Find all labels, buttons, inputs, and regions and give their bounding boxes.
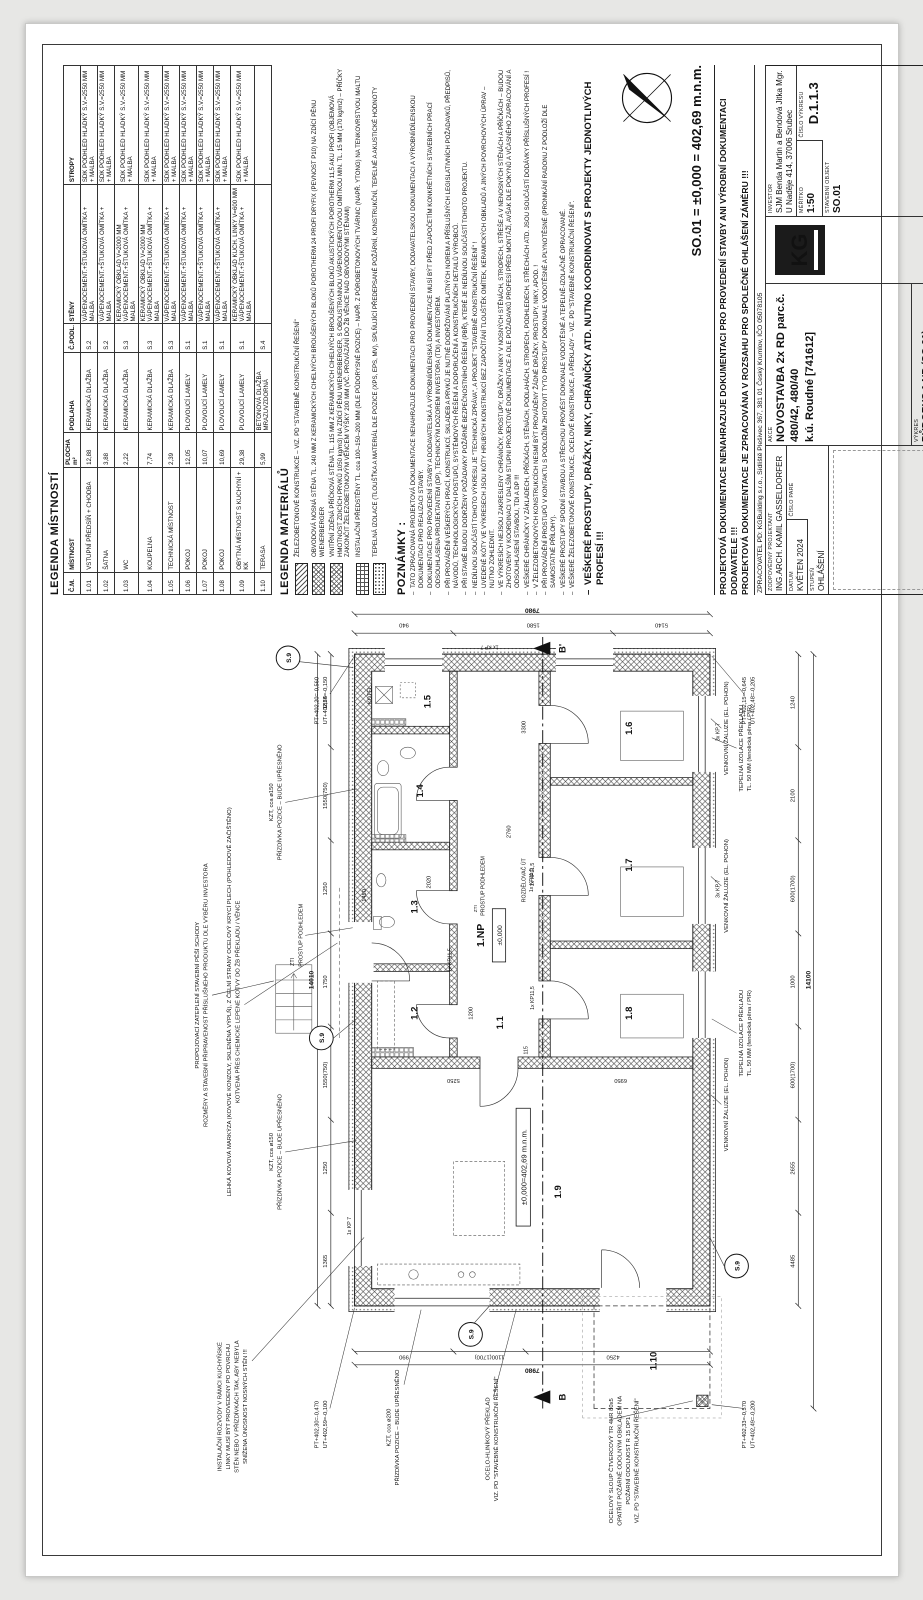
table-row: 1.03WC2,22KERAMICKÁ DLAŽBAS.3KERAMICKÝ O…	[114, 66, 138, 595]
plan-label: S.9	[734, 1261, 741, 1271]
material-description: TEPELNÁ IZOLACE (TLOUŠŤKA A MATERIÁL DLE…	[372, 87, 380, 557]
notes-list: TATO ZPRACOVANÁ PROJEKTOVÁ DOKUMENTACE N…	[410, 65, 577, 595]
dimension-chain	[810, 651, 816, 1411]
project-location: k.ú. Roudné [741612]	[803, 287, 817, 442]
plan-label: 600(1700)	[790, 1062, 796, 1089]
plan-label: PT+402,30=-0,470	[314, 1401, 320, 1448]
table-cell: S.1	[196, 324, 213, 352]
plan-label: INSTALAČNÍ ROZVODY V RÁMCI KUCHYŇSKÉ	[216, 1342, 223, 1471]
plan-label: 1240	[790, 695, 796, 709]
plan-label: VIZ. PD "STAVEBNĚ KONSTRUKČNÍ ŘEŠENÍ"	[632, 1398, 640, 1523]
table-row: 1.08POKOJ10,69PLOVOUCÍ LAMELYS.1VÁPENOCE…	[213, 66, 230, 595]
table-cell: KERAMICKÝ OBKLAD V=2000 MM VÁPENOCEMENT.…	[114, 185, 138, 324]
plan-label: 7980	[524, 607, 539, 614]
plan-label: 1.3	[409, 900, 420, 913]
investor-cell: INVESTOR SJM Benda Martin a Bendová Jitk…	[766, 66, 797, 216]
author-line: ZPRACOVATEL PD: KGBuilding s.r.o., Sídli…	[754, 65, 766, 595]
plan-label: 1550(750)	[323, 1062, 329, 1089]
plan-label: PROSTUP PODHLEDEM	[480, 856, 486, 916]
hatch-swatch-icon	[330, 563, 343, 595]
plan-label: 6950	[614, 1077, 627, 1083]
drawing-frame: 1.11.21.31.41.51.61.71.81.91.101.NP±0,00…	[42, 44, 882, 1556]
table-cell: SDK PODHLED HLADKÝ S.V.=2550 MM + MALBA	[179, 66, 196, 185]
note-line: PŘI PROVÁDĚNÍ PROSTUPŮ V KONTAKTU S PODL…	[542, 65, 558, 595]
table-header-row: Č.M.MÍSTNOSTPLOCHA m²PODLAHAČ.PODL.STĚNY…	[63, 66, 80, 595]
plan-label: PŘÍZDÍVKA POZICE – BUDE UPŘESNĚNO	[275, 1094, 283, 1210]
field-label: MĚŘÍTKO	[799, 145, 805, 214]
column-header: STĚNY	[63, 185, 80, 324]
plan-label: S.9	[468, 1329, 475, 1339]
material-description: ŽELEZOBETONOVÉ KONSTRUKCE – VIZ. PD "STA…	[294, 319, 302, 557]
plan-label: 1580	[525, 622, 539, 628]
table-cell: KERAMICKÝ OBKLAD KUCH. LINKY V=600 MM VÁ…	[230, 185, 254, 324]
plan-label: 1.9	[552, 1185, 563, 1198]
plan-label: POŽÁRNÍ ODOLNOST R 15 DP1	[624, 1417, 632, 1505]
table-cell: 1.02	[97, 572, 114, 594]
table-cell: S.4	[254, 324, 271, 352]
table-cell: 3,88	[97, 433, 114, 467]
plan-label: 1550(750)	[323, 782, 329, 809]
table-cell: PLOVOUCÍ LAMELY	[230, 352, 254, 433]
field-label: STUPEŇ	[810, 449, 816, 591]
date-pare-row: DATUM KVĚTEN 2024 ČÍSLO PARÉ	[787, 446, 808, 594]
plan-label: 1250	[323, 1161, 329, 1175]
table-cell: KERAMICKÁ DLAŽBA	[138, 352, 162, 433]
plan-label: 5250	[447, 1077, 460, 1083]
drawing-number: D.1.1.3	[806, 69, 821, 138]
plan-label: OCELOVÝ SLOUP ČTVERCOVÝ TR 4HR 80x5	[608, 1397, 615, 1523]
material-description: INSTALAČNÍ PŘEDSTĚNY TL. cca 100–150–200…	[355, 76, 363, 557]
scale-value: 1:50	[806, 145, 817, 214]
table-row: 1.09OBYTNÁ MÍSTNOST S KUCHYNÍ + KK29,38P…	[230, 66, 254, 595]
date-cell: DATUM KVĚTEN 2024	[787, 520, 808, 595]
table-row: 1.05TECHNICKÁ MÍSTNOST2,39KERAMICKÁ DLAŽ…	[162, 66, 179, 595]
plan-label: VIZ. PD "STAVEBNĚ KONSTRUKČNÍ ŘEŠENÍ"	[492, 1377, 500, 1502]
table-cell	[254, 66, 271, 185]
table-cell: TERASA	[254, 467, 271, 572]
exterior-insulation-band	[348, 648, 715, 1311]
note-line: TATO ZPRACOVANÁ PROJEKTOVÁ DOKUMENTACE N…	[410, 65, 426, 595]
table-cell: POKOJ	[179, 467, 196, 572]
plan-label: 1x KP11,5	[447, 948, 453, 972]
plan-label: KZT, cca ø150	[268, 1132, 274, 1171]
hatch-swatch-icon	[356, 563, 369, 595]
note-line: PŘI STAVBĚ BUDOU DODRŽENY POŽADAVKY POŽÁ…	[462, 65, 470, 595]
plan-label: PŘÍZDÍVKA POZICE – BUDE UPŘESNĚNO	[275, 744, 283, 860]
table-cell: KERAMICKÝ OBKLAD V=2000 MM VÁPENOCEMENT.…	[138, 185, 162, 324]
plan-label: KOTVENÁ PŘES CHEMICKÉ LEPENÉ KOTVY DO ŽB…	[233, 900, 241, 1103]
plan-label: 1365	[323, 1254, 329, 1268]
table-cell: KERAMICKÁ DLAŽBA	[114, 352, 138, 433]
table-cell: TECHNICKÁ MÍSTNOST	[162, 467, 179, 572]
hatch-swatch-icon	[295, 563, 308, 595]
column-header: PODLAHA	[63, 352, 80, 433]
plan-label: S.9	[319, 1033, 326, 1043]
responsible-designer-cell: ZODPOVĚDNÝ PROJEKTANT ING.ARCH. KAMIL GA…	[766, 446, 787, 594]
plan-label: PT+402,33=-0,570	[742, 1401, 748, 1448]
notes-block: POZNÁMKY : TATO ZPRACOVANÁ PROJEKTOVÁ DO…	[396, 65, 607, 595]
note-line: VEŠKERÉ PROSTUPY SPODNÍ STAVBOU A STŘECH…	[559, 65, 567, 595]
plan-label: PŘÍZDÍVKA POZICE – BUDE UPŘESNĚNO	[393, 1369, 401, 1485]
plan-label: TEPELNÁ IZOLACE PŘEKLADU	[737, 990, 745, 1077]
table-cell: SDK PODHLED HLADKÝ S.V.=2550 MM + MALBA	[230, 66, 254, 185]
notes-final: VEŠKERÉ PROSTUPY, DRÁŽKY, NIKY, CHRÁNIČK…	[583, 65, 607, 595]
plan-label: 4250	[605, 1353, 619, 1359]
stage-cell: STUPEŇ OHLÁŠENÍ	[808, 446, 829, 594]
plan-label: 4485	[790, 1254, 796, 1268]
plan-label: UT+402,49=-0,200	[750, 1401, 756, 1449]
plan-label: 1x KP11,5	[530, 863, 536, 887]
table-cell: 1.08	[213, 572, 230, 594]
plan-label: VENKOVNÍ ŽALUZIE (EL. POHON)	[721, 839, 729, 933]
table-cell: S.3	[162, 324, 179, 352]
table-cell: VÁPENOCEMENT.+ŠTUKOVÁ OMÍTKA + MALBA	[213, 185, 230, 324]
openings	[346, 647, 717, 1314]
project-cell: AKCE NOVOSTAVBA 2x RD parc.č. 480/42, 48…	[766, 284, 912, 445]
table-cell: 1.03	[114, 572, 138, 594]
table-cell: VÁPENOCEMENT.+ŠTUKOVÁ OMÍTKA + MALBA	[80, 185, 97, 324]
table-cell: 10,69	[213, 433, 230, 467]
plan-label: 7980	[524, 1367, 539, 1374]
table-cell: 1.07	[196, 572, 213, 594]
title-block-col-a: ZODPOVĚDNÝ PROJEKTANT ING.ARCH. KAMIL GA…	[766, 445, 923, 594]
plan-label: 3x KP 7	[715, 880, 721, 898]
plan-label: KZT, cca ø200	[386, 1408, 392, 1447]
table-cell: 2,22	[114, 433, 138, 467]
plan-label: 2100	[790, 788, 796, 802]
note-line: UVEDENÉ KÓTY VE VÝKRESECH JSOU KÓTY HRUB…	[480, 65, 496, 595]
material-legend-item: OBVODOVÁ NOSNÁ STĚNA TL. 240 MM Z KERAMI…	[311, 65, 326, 595]
plan-label: 600(1700)	[790, 875, 796, 902]
plan-label: ZTI	[473, 905, 479, 912]
material-legend-item: ŽELEZOBETONOVÉ KONSTRUKCE – VIZ. PD "STA…	[294, 65, 308, 595]
plan-label: TL. 50 MM (fenolická pěna / PIR)	[746, 705, 752, 791]
table-cell: SDK PODHLED HLADKÝ S.V.=2550 MM + MALBA	[162, 66, 179, 185]
scale-cell: MĚŘÍTKO 1:50	[797, 141, 823, 217]
table-cell: SDK PODHLED HLADKÝ S.V.=2550 MM + MALBA	[213, 66, 230, 185]
warning-line-2: PROJEKTOVÁ DOKUMENTACE JE ZPRACOVÁNA V R…	[740, 65, 751, 595]
materials-legend-title: LEGENDA MATERIÁLŮ	[279, 65, 291, 595]
table-cell: VÁPENOCEMENT.+ŠTUKOVÁ OMÍTKA + MALBA	[97, 185, 114, 324]
page: 1.11.21.31.41.51.61.71.81.91.101.NP±0,00…	[0, 0, 923, 1600]
north-arrow-icon	[613, 65, 679, 131]
field-label: ČÍSLO VÝKRESU	[799, 69, 805, 138]
title-block-col-b: AKCE NOVOSTAVBA 2x RD parc.č. 480/42, 48…	[766, 283, 923, 445]
material-legend-item: INSTALAČNÍ PŘEDSTĚNY TL. cca 100–150–200…	[355, 65, 369, 595]
note-line: DOKUMENTACE PRO PROVEDENÍ STAVBY A DODAV…	[427, 65, 443, 595]
column-header: Č.M.	[63, 572, 80, 594]
plan-label: LEHKÁ KOVOVÁ MARKÝZA (KOVOVÉ KONZOLY, SK…	[225, 807, 233, 1196]
field-value: OHLÁŠENÍ	[817, 449, 826, 591]
plan-label: TL. 50 MM (fenolická pěna / PIR)	[746, 990, 752, 1076]
room-legend-title: LEGENDA MÍSTNOSTÍ	[49, 65, 61, 595]
note-line: NEDÍLNOU SOUČÁSTÍ TOHOTO VÝKRESU JE "TEC…	[471, 65, 479, 595]
table-cell: S.2	[80, 324, 97, 352]
exterior-stairs	[275, 886, 339, 1038]
investor-address: U Naděje 414, 37006 Srubec	[785, 69, 794, 213]
table-cell: 12,05	[179, 433, 196, 467]
plan-label: PROSTUP PODHLEDEM	[298, 903, 304, 966]
plan-label: B'	[557, 644, 568, 653]
warning-line-1: PROJEKTOVÁ DOKUMENTACE NENAHRAZUJE DOKUM…	[717, 65, 739, 595]
plan-label: 115	[523, 1046, 529, 1054]
table-row: 1.01VSTUPNÍ PŘEDSÍŇ + CHODBA12,88KERAMIC…	[80, 66, 97, 595]
plan-label: 3300	[521, 721, 527, 734]
plan-label: 940	[398, 622, 409, 628]
plan-label: ZTI	[289, 958, 295, 966]
materials-list: ŽELEZOBETONOVÉ KONSTRUKCE – VIZ. PD "STA…	[294, 65, 386, 595]
compass-row	[613, 65, 679, 595]
table-cell: KERAMICKÁ DLAŽBA	[97, 352, 114, 433]
plan-label: PT+402,20=-0,560	[314, 677, 320, 724]
table-cell: BETONOVÁ DLAŽBA MRAZUVZDORNÁ	[254, 352, 271, 433]
table-cell: OBYTNÁ MÍSTNOST S KUCHYNÍ + KK	[230, 467, 254, 572]
table-cell	[254, 185, 271, 324]
building-object-value: SO.01	[832, 69, 843, 213]
plan-label: 1.7	[624, 858, 635, 871]
table-cell: S.1	[213, 324, 230, 352]
plan-label: OCELO-HLINÍKOVÝ PŘEKLAD	[483, 1397, 491, 1480]
title-block-col-c: KG	[766, 216, 923, 283]
table-cell: PLOVOUCÍ LAMELY	[213, 352, 230, 433]
column-header: MÍSTNOST	[63, 467, 80, 572]
plan-label: 1750	[323, 975, 329, 989]
plan-label: 1x KP 7	[480, 644, 498, 650]
table-cell: VSTUPNÍ PŘEDSÍŇ + CHODBA	[80, 467, 97, 572]
note-line: VEŠKERÉ ŽELEZOBETONOVÉ KONSTRUKCE, OCELO…	[569, 65, 577, 595]
note-line: V ŽELEZOBETONOVÝCH KONSTRUKCÍCH NESMÍ BÝ…	[532, 65, 540, 595]
plan-label: 1.10	[648, 1352, 659, 1370]
table-cell: 10,07	[196, 433, 213, 467]
table-cell: VÁPENOCEMENT.+ŠTUKOVÁ OMÍTKA + MALBA	[162, 185, 179, 324]
material-description: OBVODOVÁ NOSNÁ STĚNA TL. 240 MM Z KERAMI…	[311, 65, 326, 557]
table-cell: 2,39	[162, 433, 179, 467]
table-cell: KERAMICKÁ DLAŽBA	[162, 352, 179, 433]
plan-label: 1000	[790, 975, 796, 989]
plan-label: 14010	[308, 970, 315, 989]
table-row: 1.06POKOJ12,05PLOVOUCÍ LAMELYS.1VÁPENOCE…	[179, 66, 196, 595]
floor-plan-drawing: 1.11.21.31.41.51.61.71.81.91.101.NP±0,00…	[47, 599, 875, 1551]
table-cell: S.3	[138, 324, 162, 352]
material-legend-item: VNITŘNÍ ZDĚNÁ PŘÍČKOVÁ STĚNA TL. 115 MM …	[329, 65, 352, 595]
notes-title: POZNÁMKY :	[396, 65, 408, 595]
copy-number-cell: ČÍSLO PARÉ	[787, 446, 808, 520]
plan-label: UT+402,54=-0,150	[323, 677, 329, 725]
field-label: ČÍSLO PARÉ	[789, 449, 795, 517]
drawing-sheet: 1.11.21.31.41.51.61.71.81.91.101.NP±0,00…	[25, 23, 899, 1577]
section-markers	[276, 646, 748, 1346]
title-block: PROJEKTOVÁ DOKUMENTACE NENAHRAZUJE DOKUM…	[713, 65, 923, 595]
plan-label: TEPELNÁ IZOLACE PŘEKLADU	[737, 705, 745, 792]
table-row: 1.07POKOJ10,07PLOVOUCÍ LAMELYS.1VÁPENOCE…	[196, 66, 213, 595]
door-swings	[371, 705, 639, 1287]
investor-name: SJM Benda Martin a Bendová Jitka Mgr.	[775, 69, 784, 213]
plan-label: PROPOJOVACÍ ZATEPLENÍ STAVEBNÍ PĚŠÍ SCHO…	[192, 922, 200, 1069]
plan-label: 1.5	[422, 694, 433, 708]
table-cell: SDK PODHLED HLADKÝ S.V.=2550 MM + MALBA	[80, 66, 97, 185]
materials-legend-block: LEGENDA MATERIÁLŮ ŽELEZOBETONOVÉ KONSTRU…	[279, 65, 389, 595]
dimension-chain	[351, 630, 712, 636]
table-cell: VÁPENOCEMENT.+ŠTUKOVÁ OMÍTKA + MALBA	[196, 185, 213, 324]
title-block-grid: ZODPOVĚDNÝ PROJEKTANT ING.ARCH. KAMIL GA…	[766, 65, 923, 595]
plan-label: VENKOVNÍ ŽALUZIE (EL. POHON)	[721, 1058, 729, 1152]
table-cell: POKOJ	[196, 467, 213, 572]
table-cell: 29,38	[230, 433, 254, 467]
plan-label: ROZDĚLOVAČ ÚT	[519, 857, 527, 902]
project-name: NOVOSTAVBA 2x RD parc.č. 480/42, 480/40	[775, 287, 803, 442]
plan-label: 1200	[468, 1007, 474, 1020]
drawing-number-cell: ČÍSLO VÝKRESU D.1.1.3	[797, 66, 823, 141]
plan-label: ROZMĚRY A STAVEBNÍ PŘIPRAVENOST PŘÍSLUŠN…	[201, 863, 209, 1127]
plan-label: 1x KP11,5	[530, 986, 536, 1010]
plan-label: 1.8	[624, 1007, 635, 1020]
table-cell: 1.09	[230, 572, 254, 594]
plan-label: 1.6	[624, 722, 635, 735]
field-label: INVESTOR	[768, 69, 774, 213]
table-cell: PLOVOUCÍ LAMELY	[196, 352, 213, 433]
plan-label: KOTEL	[367, 686, 373, 704]
note-line: VEŠKERÉ CHRÁNIČKY V ZÁKLADECH, PŘÍČKÁCH,…	[523, 65, 531, 595]
plan-label: SNÍŽENA ÚNOSNOST NOSNÝCH STĚN !!!	[241, 1349, 249, 1464]
table-cell: ŠATNA	[97, 467, 114, 572]
table-cell: 12,88	[80, 433, 97, 467]
table-cell: VÁPENOCEMENT.+ŠTUKOVÁ OMÍTKA + MALBA	[179, 185, 196, 324]
note-line: PŘI PROVÁDĚNÍ VEŠKERÝCH PRACÍ, KONSTRUKC…	[444, 65, 460, 595]
plan-label: 1100(1700)	[474, 1353, 504, 1359]
right-column: LEGENDA MÍSTNOSTÍ Č.M.MÍSTNOSTPLOCHA m²P…	[49, 65, 877, 595]
table-cell: 1.06	[179, 572, 196, 594]
table-cell: 5,99	[254, 433, 271, 467]
plan-label: 1.1	[494, 1015, 505, 1029]
plan-label: ±0,000=402,69 m.n.m.	[519, 1129, 528, 1205]
plan-label: 2760	[506, 825, 512, 838]
field-label: ZODPOVĚDNÝ PROJEKTANT	[768, 449, 774, 591]
table-cell: 1.10	[254, 572, 271, 594]
note-line: VE VÝKRESÍCH NEJSOU ZAKRESLENY CHRÁNIČKY…	[498, 65, 522, 595]
plan-label: 2020	[426, 876, 432, 889]
table-cell: S.1	[179, 324, 196, 352]
plan-label: 14100	[805, 970, 812, 989]
plan-label: 3x KP 7	[715, 723, 721, 741]
table-cell: KERAMICKÁ DLAŽBA	[80, 352, 97, 433]
scale-number-row: MĚŘÍTKO 1:50 ČÍSLO VÝKRESU D.1.1.3	[797, 66, 823, 216]
field-value: ING.ARCH. KAMIL GASSELDORFER	[775, 449, 784, 591]
table-cell: 1.04	[138, 572, 162, 594]
hatch-swatch-icon	[312, 563, 325, 595]
column-header: STROPY	[63, 66, 80, 185]
table-cell: SDK PODHLED HLADKÝ S.V.=2550 MM + MALBA	[138, 66, 162, 185]
field-label: AKCE	[768, 287, 774, 442]
field-value	[796, 449, 805, 517]
plan-label: S.9	[285, 653, 292, 663]
column-header: PLOCHA m²	[63, 433, 80, 467]
room-legend-block: LEGENDA MÍSTNOSTÍ Č.M.MÍSTNOSTPLOCHA m²P…	[49, 65, 272, 595]
field-label: VÝKRES	[914, 287, 920, 442]
field-value: KVĚTEN 2024	[796, 524, 805, 592]
table-cell: SDK PODHLED HLADKÝ S.V.=2550 MM + MALBA	[97, 66, 114, 185]
exterior-wall	[354, 654, 709, 1306]
table-cell: POKOJ	[213, 467, 230, 572]
floor-plan-area: 1.11.21.31.41.51.61.71.81.91.101.NP±0,00…	[47, 599, 875, 1551]
drawing-name-cell: VÝKRES PŮDORYS 1.NP (SO.01)	[912, 284, 923, 445]
table-cell: 1.01	[80, 572, 97, 594]
column-header: Č.PODL.	[63, 324, 80, 352]
plan-label: 1x KP 7	[346, 1217, 352, 1235]
table-cell: 1.05	[162, 572, 179, 594]
svg-text:KG: KG	[787, 234, 812, 267]
plan-label: ±0,000	[496, 925, 503, 946]
plan-label: OPATŘIT POŽÁRNĚ ODOLNÝM OBKLADEM NA	[615, 1396, 623, 1526]
table-cell: SDK PODHLED HLADKÝ S.V.=2550 MM + MALBA	[196, 66, 213, 185]
building-object-cell: STAVEBNÍ OBJEKT SO.01	[823, 66, 923, 216]
table-cell: PLOVOUCÍ LAMELY	[179, 352, 196, 433]
material-legend-item: TEPELNÁ IZOLACE (TLOUŠŤKA A MATERIÁL DLE…	[372, 65, 386, 595]
plan-label: 1.4	[414, 784, 425, 798]
plan-label: 2655	[790, 1161, 796, 1175]
table-cell: SDK PODHLED HLADKÝ S.V.=2550 MM + MALBA	[114, 66, 138, 185]
plan-label: 990	[398, 1353, 409, 1359]
table-cell: S.2	[97, 324, 114, 352]
plan-label: STĚN NEBO V PŘÍZDÍVKÁCH TAK, ABY NEBYLA	[232, 1340, 240, 1473]
table-cell: KOUPELNA	[138, 467, 162, 572]
plan-label: 1.2	[409, 1007, 420, 1020]
hatch-swatch-icon	[373, 563, 386, 595]
table-cell: S.3	[114, 324, 138, 352]
table-row: 1.02ŠATNA3,88KERAMICKÁ DLAŽBAS.2VÁPENOCE…	[97, 66, 114, 595]
plan-label: B	[557, 1394, 568, 1401]
field-label: DATUM	[789, 524, 795, 592]
plan-label: UT+402,59=-0,100	[323, 1401, 329, 1449]
plan-label: KZT, cca ø150	[268, 783, 274, 822]
table-cell: 7,74	[138, 433, 162, 467]
table-cell: S.1	[230, 324, 254, 352]
material-description: VNITŘNÍ ZDĚNÁ PŘÍČKOVÁ STĚNA TL. 115 MM …	[329, 65, 352, 557]
table-cell: WC	[114, 467, 138, 572]
field-label: STAVEBNÍ OBJEKT	[825, 69, 831, 213]
plan-label: 1.NP	[475, 924, 486, 947]
plan-label: LINKY MUSÍ BÝT PROVEDENY PO POVRCHU	[225, 1344, 232, 1470]
title-block-col-d: INVESTOR SJM Benda Martin a Bendová Jitk…	[766, 66, 923, 216]
stamp-placeholder	[833, 450, 923, 590]
table-row: 1.04KOUPELNA7,74KERAMICKÁ DLAŽBAS.3KERAM…	[138, 66, 162, 595]
plan-label: 1450	[361, 889, 367, 902]
plan-label: 5140	[654, 622, 668, 628]
company-logo-icon: KG	[774, 224, 826, 276]
plan-label: 1250	[323, 882, 329, 896]
plan-label: VENKOVNÍ ŽALUZIE (EL. POHON)	[721, 681, 729, 775]
so-level-line: SO.01 = ±0,000 = 402,69 m.n.m.	[688, 65, 703, 595]
table-row: 1.10TERASA5,99BETONOVÁ DLAŽBA MRAZUVZDOR…	[254, 66, 271, 595]
room-table: Č.M.MÍSTNOSTPLOCHA m²PODLAHAČ.PODL.STĚNY…	[63, 65, 272, 595]
